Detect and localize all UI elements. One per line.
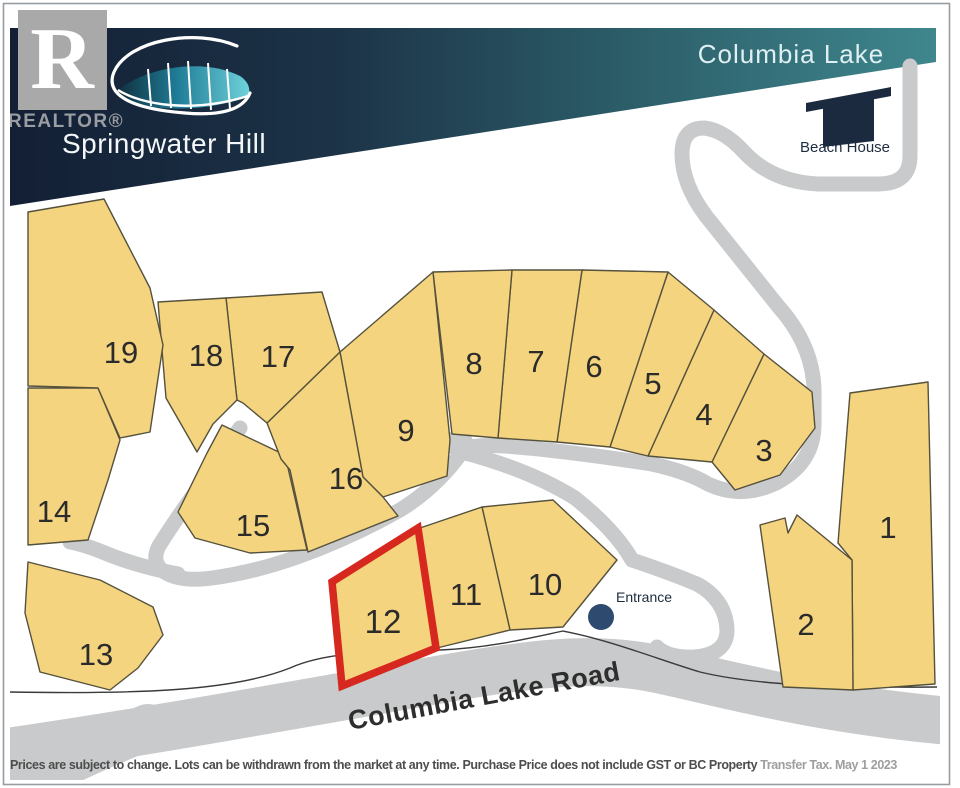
entrance-label: Entrance [616,589,672,605]
disclaimer-main-text: Prices are subject to change. Lots can b… [10,758,760,772]
lot-5-number: 5 [644,366,661,401]
lot-3-number: 3 [755,433,772,468]
lot-4-number: 4 [695,397,712,432]
lake-name-label: Columbia Lake [698,39,884,69]
lot-8-number: 8 [465,346,482,381]
site-map-canvas: 12345678910111213141516171819 R REALTOR® [0,0,960,788]
lot-10-number: 10 [528,567,562,602]
lot-1-number: 1 [879,510,896,545]
lot-6-number: 6 [585,349,602,384]
disclaimer-bar: Prices are subject to change. Lots can b… [10,758,952,772]
realtor-logo: R REALTOR® [8,6,124,132]
lot-13-number: 13 [79,637,113,672]
development-title: Springwater Hill [62,128,266,159]
lot-12-number: 12 [365,603,402,640]
disclaimer-light-text: Transfer Tax. May 1 2023 [760,758,897,772]
lot-7-number: 7 [527,344,544,379]
entrance-dot-icon [588,604,614,630]
beach-house-label: Beach House [800,139,890,156]
lot-14-number: 14 [37,494,71,529]
lot-15-number: 15 [236,508,270,543]
lot-18-number: 18 [189,338,223,373]
lot-16-number: 16 [329,461,363,496]
lot-9-number: 9 [397,413,414,448]
lot-19-number: 19 [104,335,138,370]
lot-11-number: 11 [450,577,482,612]
springwater-hill-lot-map: 12345678910111213141516171819 R REALTOR® [0,0,960,788]
lot-2-number: 2 [797,607,814,642]
realtor-r-mark: R [30,11,95,108]
lot-17-number: 17 [261,339,295,374]
